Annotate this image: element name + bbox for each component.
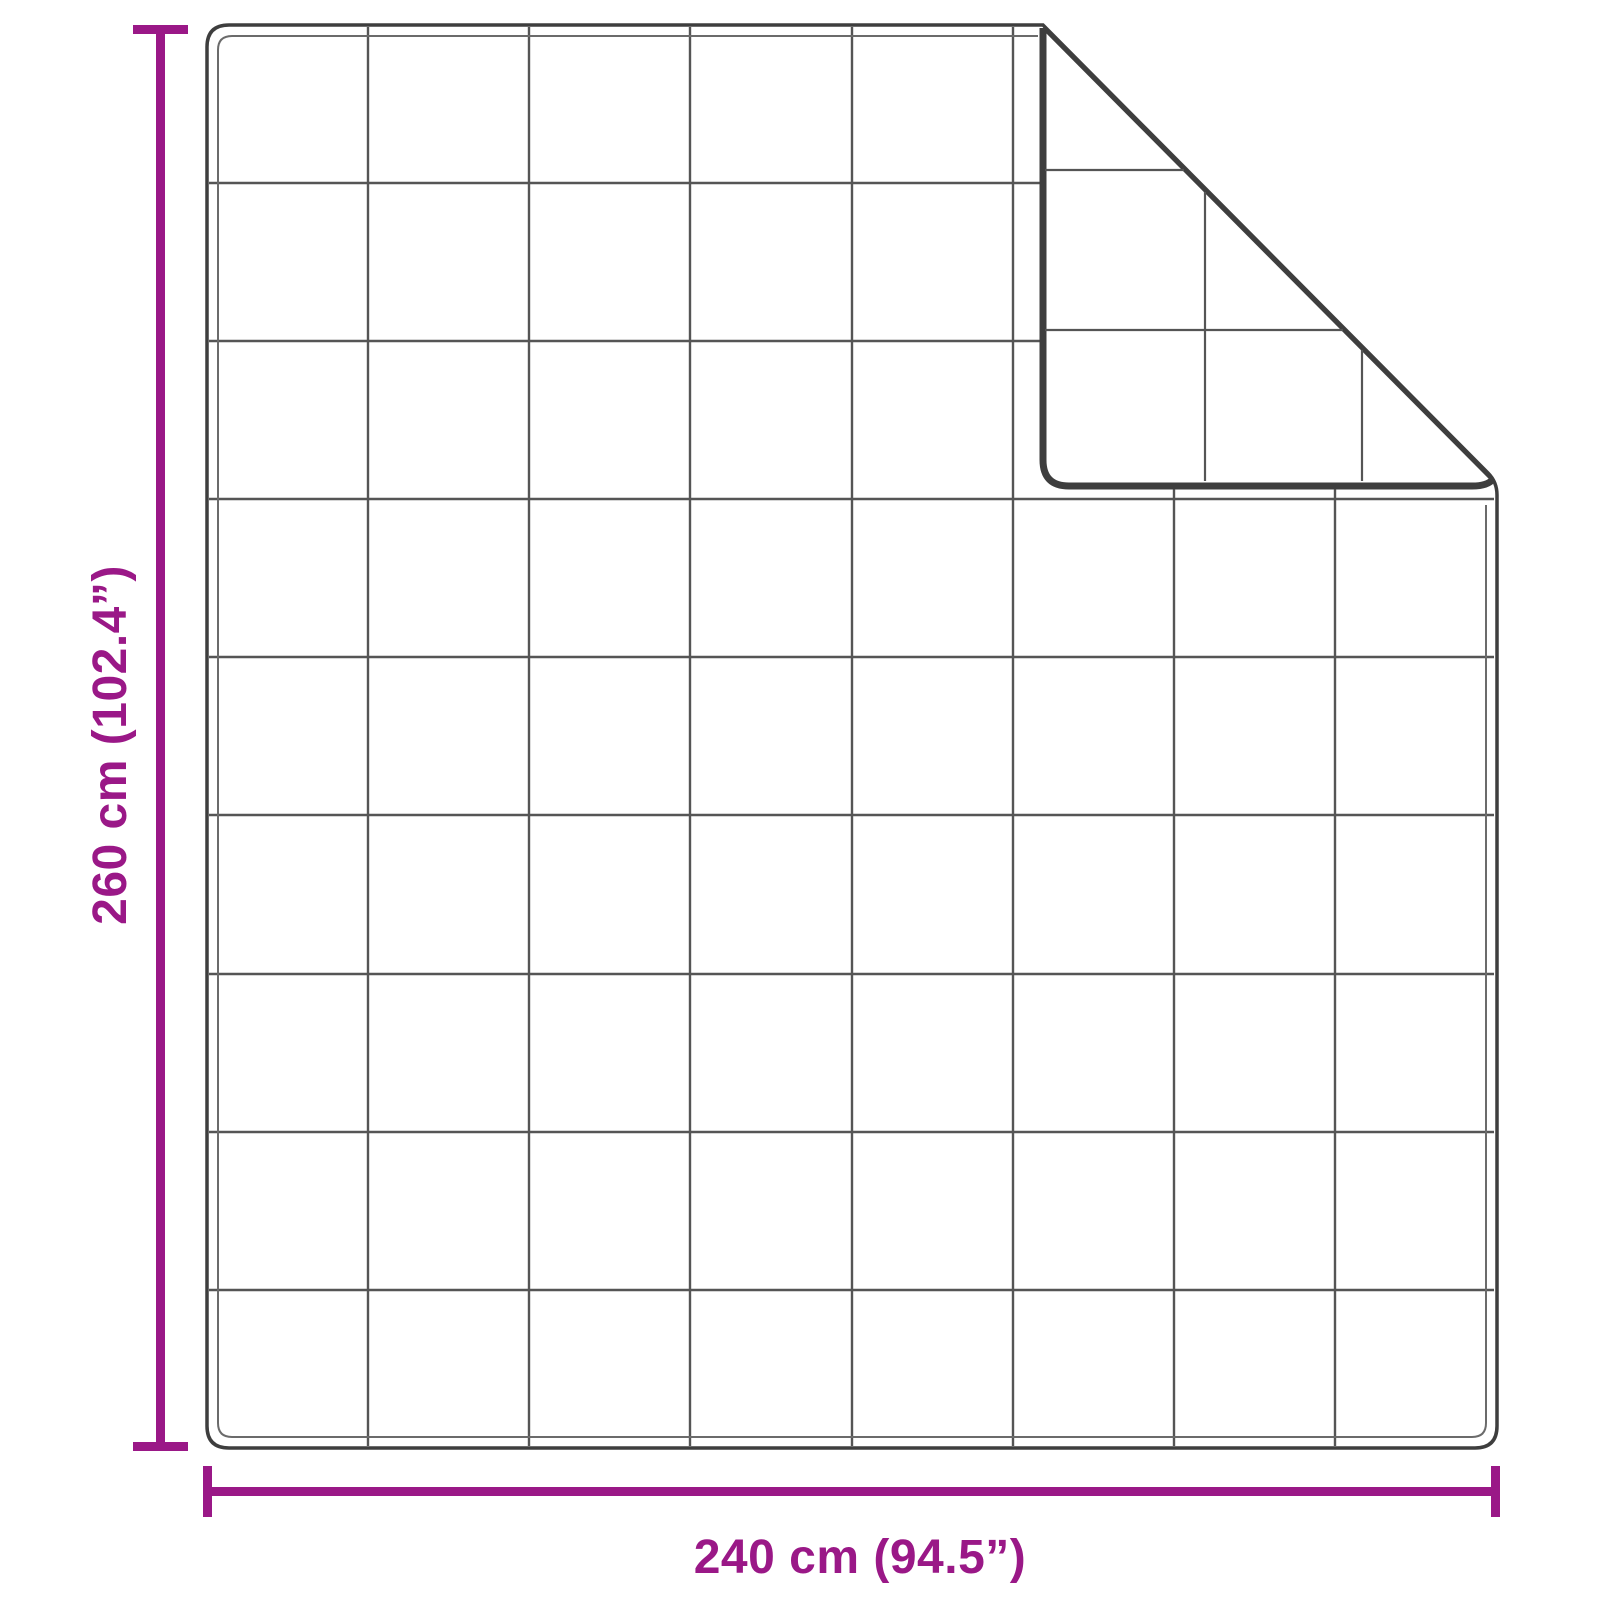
product-dimension-diagram: 260 cm (102.4”) 240 cm (94.5”) — [0, 0, 1600, 1600]
height-label: 260 cm (102.4”) — [84, 565, 137, 925]
width-label: 240 cm (94.5”) — [694, 1531, 1027, 1584]
vertical-dimension-top-cap — [133, 25, 188, 34]
horizontal-dimension-right-cap — [1491, 1466, 1500, 1517]
vertical-dimension: 260 cm (102.4”) — [84, 25, 188, 1451]
horizontal-dimension: 240 cm (94.5”) — [203, 1466, 1500, 1584]
vertical-dimension-bottom-cap — [133, 1442, 188, 1451]
horizontal-dimension-left-cap — [203, 1466, 212, 1517]
horizontal-dimension-line — [207, 1487, 1497, 1496]
vertical-dimension-line — [156, 25, 165, 1451]
blanket — [207, 25, 1497, 1448]
